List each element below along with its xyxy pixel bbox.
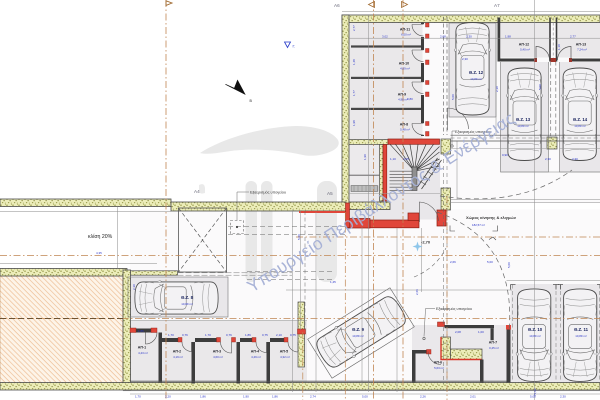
svg-text:ΑΠ-11: ΑΠ-11 (400, 28, 410, 32)
svg-text:5,00: 5,00 (507, 262, 511, 268)
svg-text:ΑΠ-13: ΑΠ-13 (576, 43, 586, 47)
svg-text:1,86: 1,86 (200, 395, 206, 399)
svg-text:2,74: 2,74 (310, 395, 316, 399)
svg-text:10,89 m²: 10,89 m² (529, 334, 540, 338)
svg-text:6,00 m²: 6,00 m² (401, 33, 411, 37)
svg-text:1,98: 1,98 (505, 35, 511, 39)
svg-text:2,30: 2,30 (495, 86, 499, 92)
svg-text:1,45: 1,45 (330, 280, 336, 284)
svg-text:5,48 m²: 5,48 m² (400, 128, 410, 132)
svg-text:2,08: 2,08 (440, 35, 446, 39)
svg-text:1,70: 1,70 (135, 395, 141, 399)
svg-text:1,10: 1,10 (390, 157, 396, 161)
svg-text:5,00: 5,00 (451, 94, 455, 100)
svg-text:182,57 m²: 182,57 m² (472, 223, 485, 227)
svg-text:0,45 m²: 0,45 m² (489, 346, 499, 350)
svg-text:4,60 m²: 4,60 m² (213, 355, 223, 359)
svg-text:Θ.Ζ. 10: Θ.Ζ. 10 (528, 327, 543, 332)
svg-text:1,90: 1,90 (243, 395, 249, 399)
svg-text:1,98: 1,98 (352, 120, 356, 126)
svg-text:2,30: 2,30 (462, 57, 468, 61)
svg-text:ΑΠ-9: ΑΠ-9 (398, 93, 406, 97)
svg-text:5,00: 5,00 (362, 395, 368, 399)
svg-text:1,00: 1,00 (478, 330, 484, 334)
svg-text:Χώρος κίνησης & ελιγμών: Χώρος κίνησης & ελιγμών (466, 215, 517, 220)
svg-text:5,63 m²: 5,63 m² (434, 366, 444, 370)
svg-text:Α6: Α6 (334, 3, 340, 8)
svg-text:0,76: 0,76 (182, 333, 188, 337)
svg-text:4,19 m²: 4,19 m² (173, 355, 183, 359)
svg-text:2,26: 2,26 (420, 395, 426, 399)
svg-text:Θ.Ζ. 12: Θ.Ζ. 12 (469, 70, 484, 75)
svg-text:1,70: 1,70 (205, 333, 211, 337)
svg-text:1,70: 1,70 (168, 333, 174, 337)
svg-text:ΑΠ-6: ΑΠ-6 (434, 361, 442, 365)
svg-text:2,30: 2,30 (572, 157, 578, 161)
svg-text:4,35: 4,35 (96, 251, 102, 255)
svg-text:-2,70: -2,70 (421, 240, 431, 245)
svg-text:0,90: 0,90 (502, 153, 508, 157)
svg-text:5,40 m²: 5,40 m² (520, 48, 530, 52)
svg-text:2,66: 2,66 (450, 260, 456, 264)
svg-text:0,05: 0,05 (403, 157, 409, 161)
svg-text:5,00: 5,00 (538, 84, 542, 90)
svg-text:2,30: 2,30 (545, 157, 551, 161)
svg-text:0,76: 0,76 (226, 333, 232, 337)
svg-text:10,89 m²: 10,89 m² (470, 77, 481, 81)
svg-text:2,20: 2,20 (165, 395, 171, 399)
svg-text:2,30: 2,30 (132, 284, 136, 290)
svg-text:ΑΠ-7: ΑΠ-7 (489, 341, 497, 345)
svg-text:2,66: 2,66 (415, 289, 419, 295)
svg-text:4,32 m²: 4,32 m² (280, 355, 290, 359)
svg-text:5,00: 5,00 (487, 260, 493, 264)
svg-text:4,09 m²: 4,09 m² (400, 67, 410, 71)
svg-text:ΑΠ-1: ΑΠ-1 (138, 346, 146, 350)
svg-text:Θ.Ζ. 8: Θ.Ζ. 8 (181, 295, 194, 300)
svg-text:ΑΠ-3: ΑΠ-3 (213, 350, 221, 354)
svg-text:Θ.Ζ. 11: Θ.Ζ. 11 (574, 327, 589, 332)
svg-text:Γ.: Γ. (293, 44, 296, 49)
svg-text:Θ.Ζ. 9: Θ.Ζ. 9 (352, 327, 365, 332)
svg-text:Θ.Ζ. 13: Θ.Ζ. 13 (516, 117, 531, 122)
svg-text:ΑΠ-12: ΑΠ-12 (519, 43, 529, 47)
svg-text:Εξαερισμός υπογείου: Εξαερισμός υπογείου (436, 307, 472, 311)
svg-text:Α4: Α4 (194, 189, 200, 194)
svg-text:1,48: 1,48 (352, 59, 356, 65)
svg-text:ΑΠ-8: ΑΠ-8 (400, 123, 408, 127)
svg-text:10,89 m²: 10,89 m² (575, 334, 586, 338)
svg-text:1,90: 1,90 (363, 154, 367, 160)
svg-text:71,03: 71,03 (533, 388, 537, 396)
svg-text:1,77: 1,77 (352, 90, 356, 96)
svg-text:ΑΠ-2: ΑΠ-2 (173, 350, 181, 354)
svg-text:10,89 m²: 10,89 m² (181, 302, 192, 306)
svg-text:1,86: 1,86 (272, 395, 278, 399)
svg-text:2,30: 2,30 (466, 35, 472, 39)
svg-text:ΑΠ-10: ΑΠ-10 (399, 62, 409, 66)
svg-text:7,24 m²: 7,24 m² (577, 48, 587, 52)
svg-text:2,77: 2,77 (352, 25, 356, 31)
svg-text:2,30: 2,30 (560, 395, 566, 399)
svg-text:ΑΠ-4: ΑΠ-4 (251, 350, 259, 354)
svg-text:Θ.Ζ. 14: Θ.Ζ. 14 (573, 117, 588, 122)
svg-text:1,86: 1,86 (245, 333, 251, 337)
svg-text:4,49 m²: 4,49 m² (251, 355, 261, 359)
svg-text:2,10: 2,10 (276, 333, 282, 337)
svg-text:1,86: 1,86 (138, 329, 144, 333)
svg-text:0,80: 0,80 (407, 97, 413, 101)
svg-text:Α7: Α7 (494, 3, 500, 8)
svg-text:10,89 m²: 10,89 m² (574, 124, 585, 128)
svg-text:2,01: 2,01 (470, 395, 476, 399)
svg-text:0,75: 0,75 (262, 333, 268, 337)
svg-text:3,02: 3,02 (382, 35, 388, 39)
svg-text:10,89 m²: 10,89 m² (352, 334, 363, 338)
svg-text:5,00: 5,00 (297, 234, 301, 240)
svg-text:2,08: 2,08 (455, 330, 461, 334)
svg-text:4,43 m²: 4,43 m² (138, 351, 148, 355)
svg-text:Εξαερισμός υπογείου: Εξαερισμός υπογείου (250, 191, 286, 195)
svg-text:0,75: 0,75 (290, 333, 296, 337)
svg-text:10,89 m²: 10,89 m² (517, 124, 528, 128)
svg-text:Α5: Α5 (327, 191, 333, 196)
svg-text:κλίση 20%: κλίση 20% (88, 234, 113, 240)
svg-text:ΑΠ-5: ΑΠ-5 (280, 350, 288, 354)
svg-text:2,77: 2,77 (570, 35, 576, 39)
svg-text:1,10: 1,10 (557, 44, 561, 50)
